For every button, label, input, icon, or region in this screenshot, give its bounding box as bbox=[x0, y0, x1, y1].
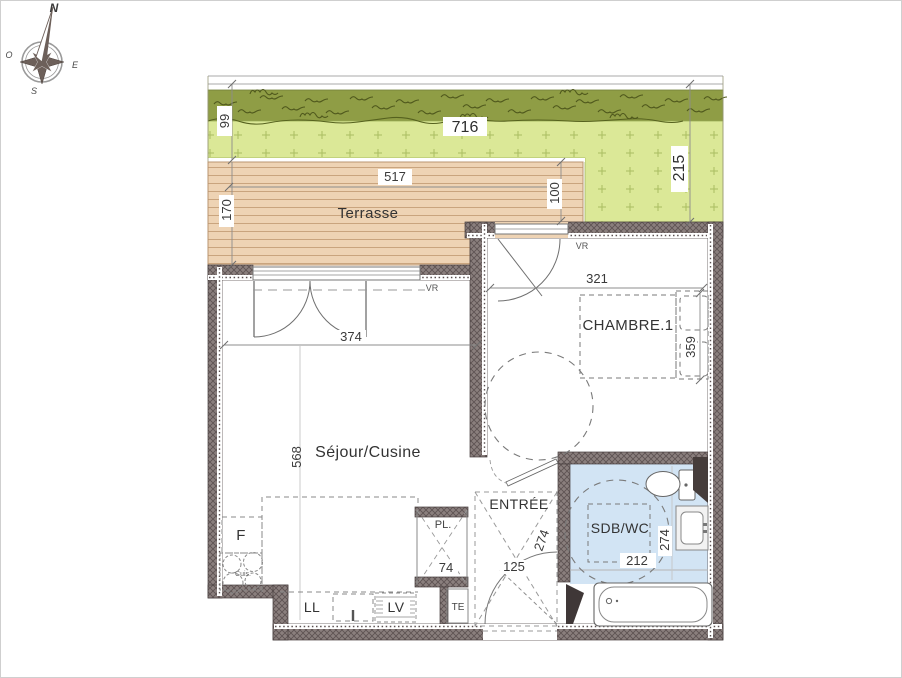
dim-garden-width: 716 bbox=[452, 119, 479, 136]
dim-living-width: 374 bbox=[340, 329, 362, 344]
lawn-dark-strip bbox=[208, 90, 723, 121]
bathtub bbox=[594, 583, 712, 626]
room-label-terrace: Terrasse bbox=[338, 205, 399, 222]
room-label-entry: ENTRÉE bbox=[489, 496, 548, 512]
dim-bathroom-depth: 274 bbox=[657, 529, 672, 551]
compass-label-west: O bbox=[5, 50, 12, 60]
wall-bathroom-top bbox=[558, 452, 708, 464]
dim-living-depth: 568 bbox=[289, 446, 304, 468]
bedroom-door bbox=[490, 459, 558, 486]
shutter-label-living: VR bbox=[426, 283, 439, 293]
label-fridge: F bbox=[236, 527, 246, 544]
dim-terrace-depth-left: 170 bbox=[219, 199, 234, 221]
wall-bathroom-left bbox=[558, 464, 570, 582]
dim-entry-diag: 274 bbox=[531, 527, 553, 553]
compass-label-east: E bbox=[72, 60, 79, 70]
dim-garden-depth-right: 215 bbox=[671, 155, 688, 182]
compass-rose: N O E S bbox=[5, 1, 79, 96]
label-te: TE bbox=[452, 602, 465, 613]
room-label-closet: PL. bbox=[435, 519, 452, 531]
shutter-label-bedroom: VR bbox=[576, 241, 589, 251]
dim-bathroom-width: 212 bbox=[626, 553, 648, 568]
turning-circle-bedroom bbox=[485, 352, 593, 460]
label-hob: Cuis. bbox=[235, 571, 251, 578]
kitchen-counter-outline bbox=[262, 497, 418, 592]
room-label-living: Séjour/Cusine bbox=[315, 444, 421, 461]
floor-plan-drawing: VR VR bbox=[0, 0, 902, 678]
room-label-bedroom: CHAMBRE.1 bbox=[582, 317, 673, 334]
dim-bed-depth: 359 bbox=[683, 336, 698, 358]
wall-closet-bottom bbox=[415, 577, 468, 587]
label-washing-machine: LL bbox=[304, 599, 320, 615]
dim-closet-width: 74 bbox=[439, 560, 453, 575]
wall-step-vertical bbox=[273, 585, 288, 640]
compass-label-north: N bbox=[50, 1, 59, 15]
compass-label-south: S bbox=[31, 86, 37, 96]
floor-plan-page: VR VR bbox=[0, 0, 902, 678]
room-label-bathroom: SDB/WC bbox=[591, 520, 649, 536]
label-dishwasher: LV bbox=[388, 599, 405, 615]
washbasin bbox=[676, 506, 708, 550]
wall-closet-top bbox=[415, 507, 468, 517]
dim-bedroom-width: 321 bbox=[586, 271, 608, 286]
french-door-living bbox=[253, 267, 425, 337]
dim-terrace-width: 517 bbox=[384, 169, 406, 184]
bathroom-door bbox=[566, 584, 584, 624]
dim-garden-depth-left: 99 bbox=[217, 114, 232, 128]
dim-terrace-depth-right: 100 bbox=[547, 182, 562, 204]
dim-entry-width: 125 bbox=[503, 559, 525, 574]
